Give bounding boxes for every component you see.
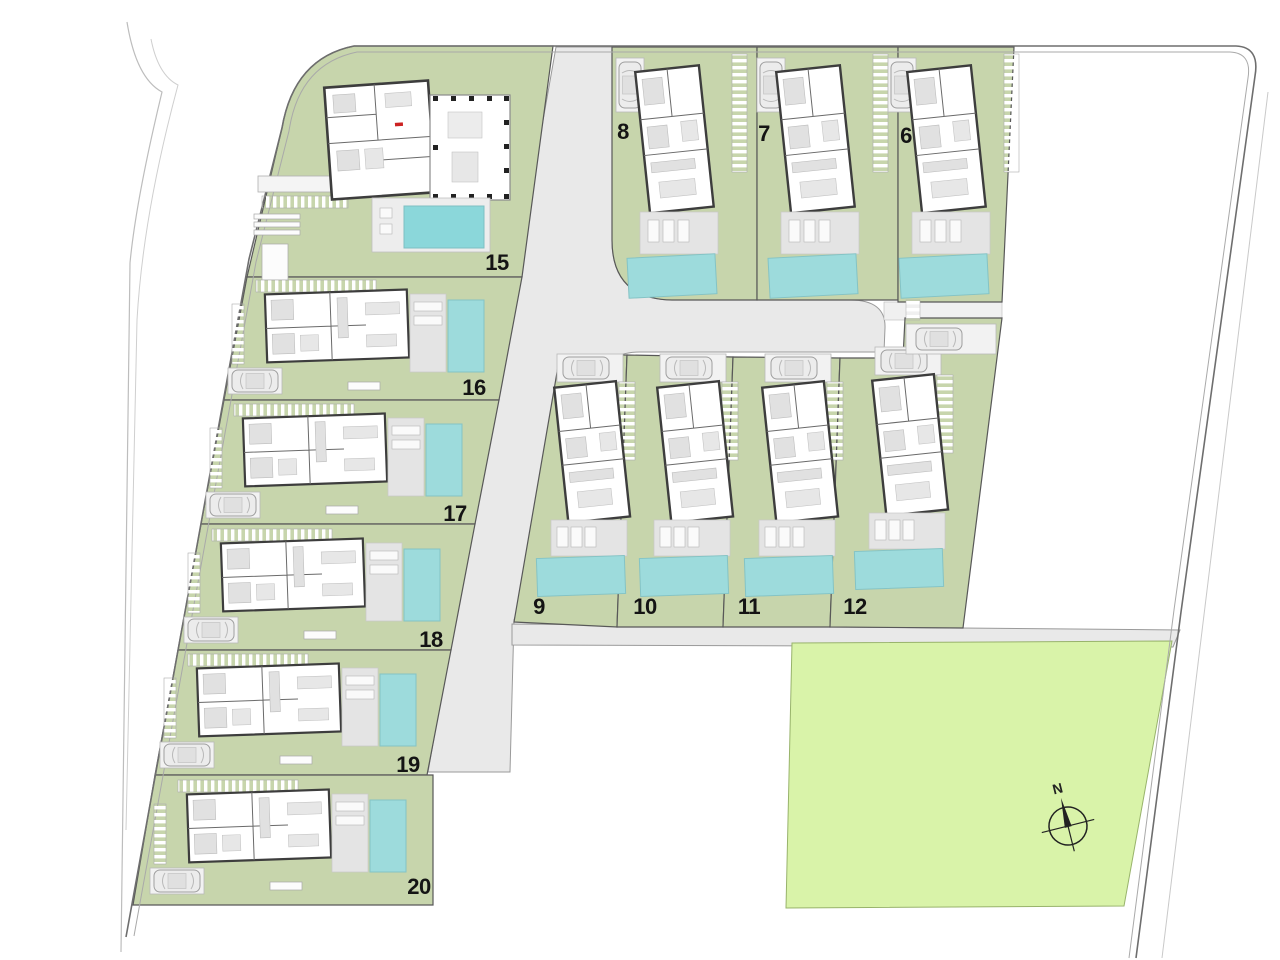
- pool-shape: [404, 206, 484, 248]
- plot-label-20: 20: [407, 874, 430, 900]
- plot-label-7: 7: [758, 121, 770, 147]
- open-space-area: [786, 641, 1172, 908]
- plot-label-17: 17: [443, 501, 466, 527]
- plot-15-porch: [430, 95, 510, 200]
- plot-label-11: 11: [738, 594, 760, 620]
- plot-label-12: 12: [843, 594, 866, 620]
- entry-marker: [395, 122, 403, 126]
- plot-label-15: 15: [485, 250, 508, 276]
- plot-15-house: [324, 81, 436, 200]
- plot-label-9: 9: [533, 594, 545, 620]
- site-plan-drawing: N: [0, 0, 1280, 960]
- plot-label-8: 8: [617, 119, 629, 145]
- site-plan-canvas: N 1516171819208769101112: [0, 0, 1280, 960]
- plot-label-18: 18: [419, 627, 442, 653]
- plot-label-16: 16: [462, 375, 485, 401]
- plot-label-10: 10: [633, 594, 656, 620]
- plot-label-19: 19: [396, 752, 419, 778]
- plot-label-6: 6: [900, 123, 912, 149]
